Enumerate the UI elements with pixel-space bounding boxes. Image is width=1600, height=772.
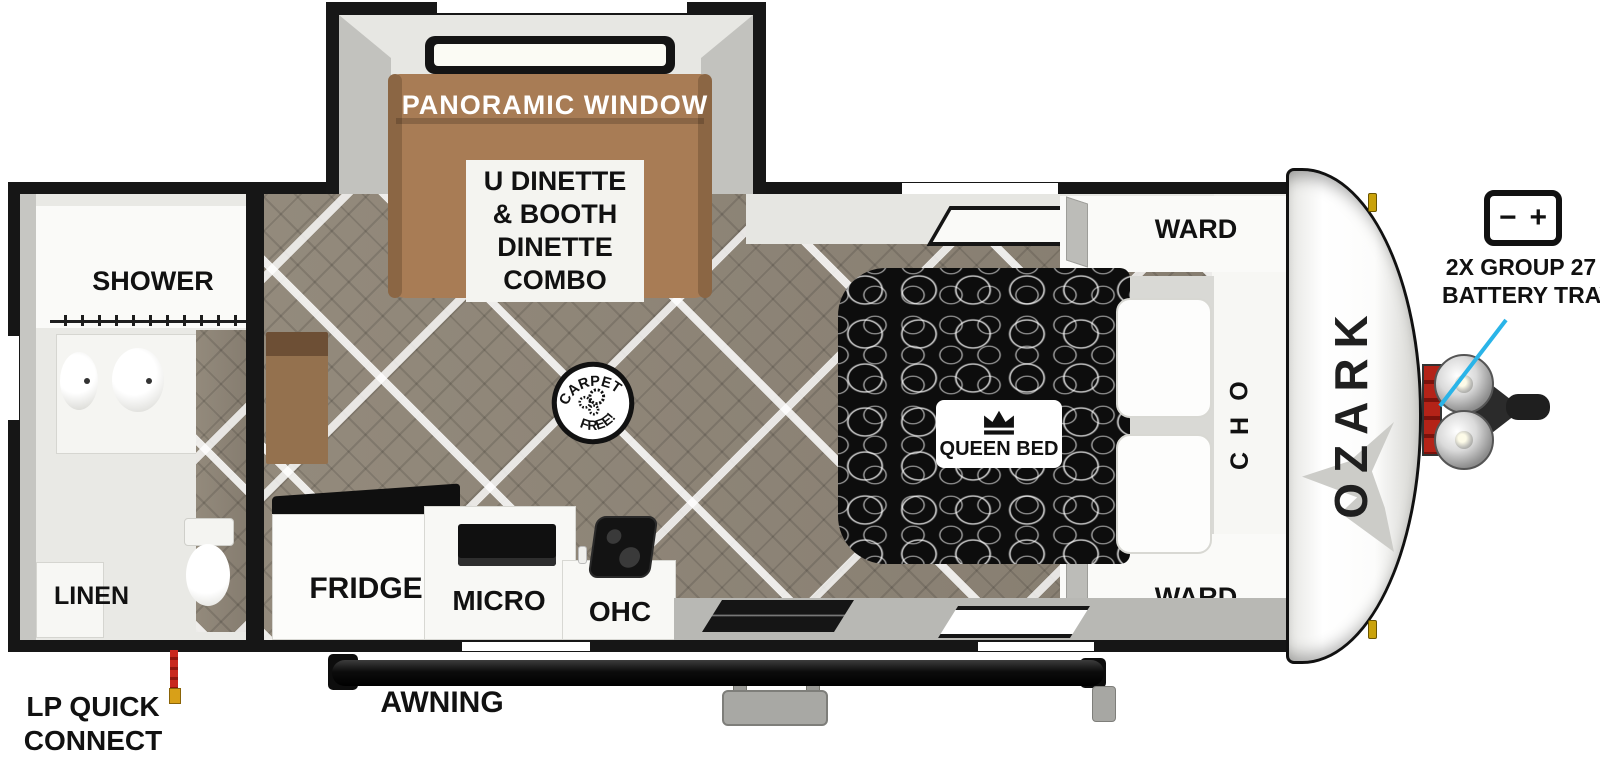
pillow [1116, 434, 1212, 554]
faucet-hole [146, 378, 152, 384]
bedroom-window [902, 183, 1058, 194]
bedroom-ohc-label: O H C [1222, 378, 1258, 474]
bathroom-window [8, 336, 19, 420]
ohc-letter: O [1227, 381, 1253, 400]
battery-plus: + [1529, 203, 1547, 233]
queen-bed-label: QUEEN BED [940, 438, 1059, 461]
sink [112, 348, 164, 412]
kitchen-ohc-label: OHC [566, 596, 674, 628]
dinette-label-line: & BOOTH [493, 198, 618, 231]
ward-top-label: WARD [1146, 214, 1246, 245]
faucet-hole [84, 378, 90, 384]
hitch-coupler [1506, 394, 1550, 420]
faucet-icon [578, 546, 587, 564]
queen-bed-label-box: QUEEN BED [936, 400, 1062, 468]
lp-quick-connect-port [170, 650, 178, 688]
dinette-label-line: COMBO [503, 264, 607, 297]
clearance-light-icon [1368, 620, 1377, 639]
ohc-letter: C [1227, 452, 1253, 470]
crown-icon [979, 408, 1019, 436]
dinette-label-box: U DINETTE & BOOTH DINETTE COMBO [466, 160, 644, 302]
tank-cap [1455, 431, 1473, 449]
micro-label: MICRO [426, 585, 572, 617]
propane-tank [1434, 410, 1494, 470]
clearance-light-icon [1368, 193, 1377, 212]
panoramic-window-slot [437, 2, 687, 13]
lp-quick-connect-label: LP QUICK CONNECT [8, 690, 178, 758]
entry-step [722, 690, 828, 726]
microwave-icon [458, 524, 556, 566]
linen-label: LINEN [54, 582, 129, 611]
brand-wrap: OZARK [1326, 202, 1376, 622]
cooktop-icon [588, 516, 659, 578]
toilet-tank [184, 518, 234, 546]
awning-bracket [1092, 686, 1116, 722]
brand-name: OZARK [1324, 305, 1378, 519]
dinette-label-line: U DINETTE [484, 165, 627, 198]
bathroom-wall [20, 194, 36, 640]
awning-bar [332, 660, 1104, 686]
wardrobe-door-panel [1066, 196, 1088, 267]
entry-door-mat [702, 600, 854, 632]
battery-minus: − [1499, 203, 1517, 233]
shower-curtain-rod [50, 320, 248, 323]
ohc-letter: H [1227, 417, 1253, 435]
pillow [1116, 298, 1212, 418]
ceiling-light-panel [434, 44, 666, 66]
bottom-window [938, 606, 1090, 638]
propane-tank [1434, 354, 1494, 414]
ceiling-light-icon [425, 36, 675, 74]
battery-label-line1: 2X GROUP 27 [1442, 254, 1600, 281]
sink [60, 352, 98, 410]
shower-label: SHOWER [53, 266, 253, 297]
window-slot [978, 642, 1094, 651]
toilet [186, 544, 230, 606]
dinette-label-line: DINETTE [497, 231, 613, 264]
bathroom-divider-wall [246, 182, 264, 652]
battery-icon: − + [1484, 190, 1562, 246]
tank-cap [1455, 375, 1473, 393]
side-cabinet [266, 332, 328, 464]
panoramic-window-label: PANORAMIC WINDOW [390, 90, 720, 121]
awning-label: AWNING [352, 686, 532, 720]
battery-label-line2: BATTERY TRAY [1442, 282, 1600, 309]
floorplan-diagram: SHOWER LINEN QUEEN BED WARD WARD O H C F [0, 0, 1600, 772]
window-slot [462, 642, 590, 651]
